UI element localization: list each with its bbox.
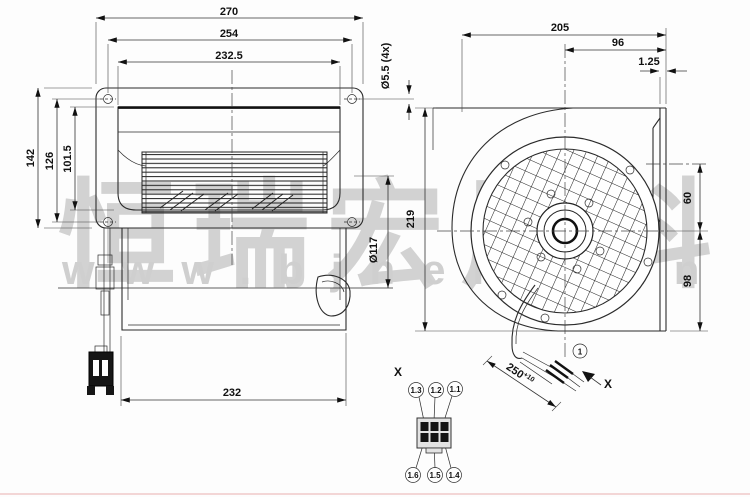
pin-1-2: 1.2 bbox=[430, 386, 442, 395]
cable-dimension: 250+10 bbox=[483, 356, 561, 411]
connector-detail: X 1.3 1.2 1.1 bbox=[394, 365, 463, 483]
front-view: 270 254 232.5 Ø5.5 (4x) 142 126 101.5 bbox=[25, 6, 414, 406]
pin-1-6: 1.6 bbox=[407, 471, 419, 480]
dim-side-height: 219 bbox=[405, 210, 417, 228]
dim-outlet-offset: 60 bbox=[682, 192, 694, 204]
blower-drawing: 270 254 232.5 Ø5.5 (4x) 142 126 101.5 bbox=[0, 0, 750, 497]
dim-hole-diameter: Ø5.5 (4x) bbox=[380, 42, 392, 89]
impeller bbox=[142, 152, 327, 213]
pin-1-5: 1.5 bbox=[429, 471, 441, 480]
svg-text:250+10: 250+10 bbox=[504, 361, 536, 388]
dim-height-inner: 101.5 bbox=[62, 145, 74, 173]
dim-side-depth: 205 bbox=[551, 22, 569, 34]
connector-section-label: X bbox=[394, 365, 402, 379]
front-cable-plug bbox=[87, 228, 114, 395]
dim-width-holes: 254 bbox=[220, 28, 239, 40]
outlet-tongue bbox=[316, 275, 350, 316]
dim-height-holes: 126 bbox=[44, 152, 56, 170]
side-view: 250+10 1 X 205 96 bbox=[405, 22, 708, 411]
connector-body bbox=[417, 418, 451, 453]
section-x-label: X bbox=[604, 377, 612, 391]
dim-impeller-diameter: Ø117 bbox=[368, 237, 380, 263]
page-bottom-rule bbox=[0, 493, 750, 495]
callout-1: 1 bbox=[573, 344, 587, 358]
cable-length: 250 bbox=[504, 361, 526, 381]
cable-tolerance: +10 bbox=[522, 371, 536, 384]
pin-1-1: 1.1 bbox=[449, 385, 461, 394]
dim-width-inner: 232.5 bbox=[215, 50, 243, 62]
dim-height-outer: 142 bbox=[25, 149, 37, 167]
dim-outlet-depth: 96 bbox=[612, 37, 624, 49]
dim-axis-height: 98 bbox=[682, 275, 694, 287]
callout-1-label: 1 bbox=[578, 348, 583, 357]
dim-flange-gap: 1.25 bbox=[638, 56, 659, 68]
pin-1-4: 1.4 bbox=[448, 471, 460, 480]
section-arrow-x: X bbox=[582, 371, 612, 391]
technical-drawing-page: 恒瑞宏晟科 www.bjhengrun bbox=[0, 0, 750, 497]
pin-1-3: 1.3 bbox=[410, 386, 422, 395]
dim-depth: 232 bbox=[223, 387, 241, 399]
dim-width-outer: 270 bbox=[220, 6, 238, 18]
